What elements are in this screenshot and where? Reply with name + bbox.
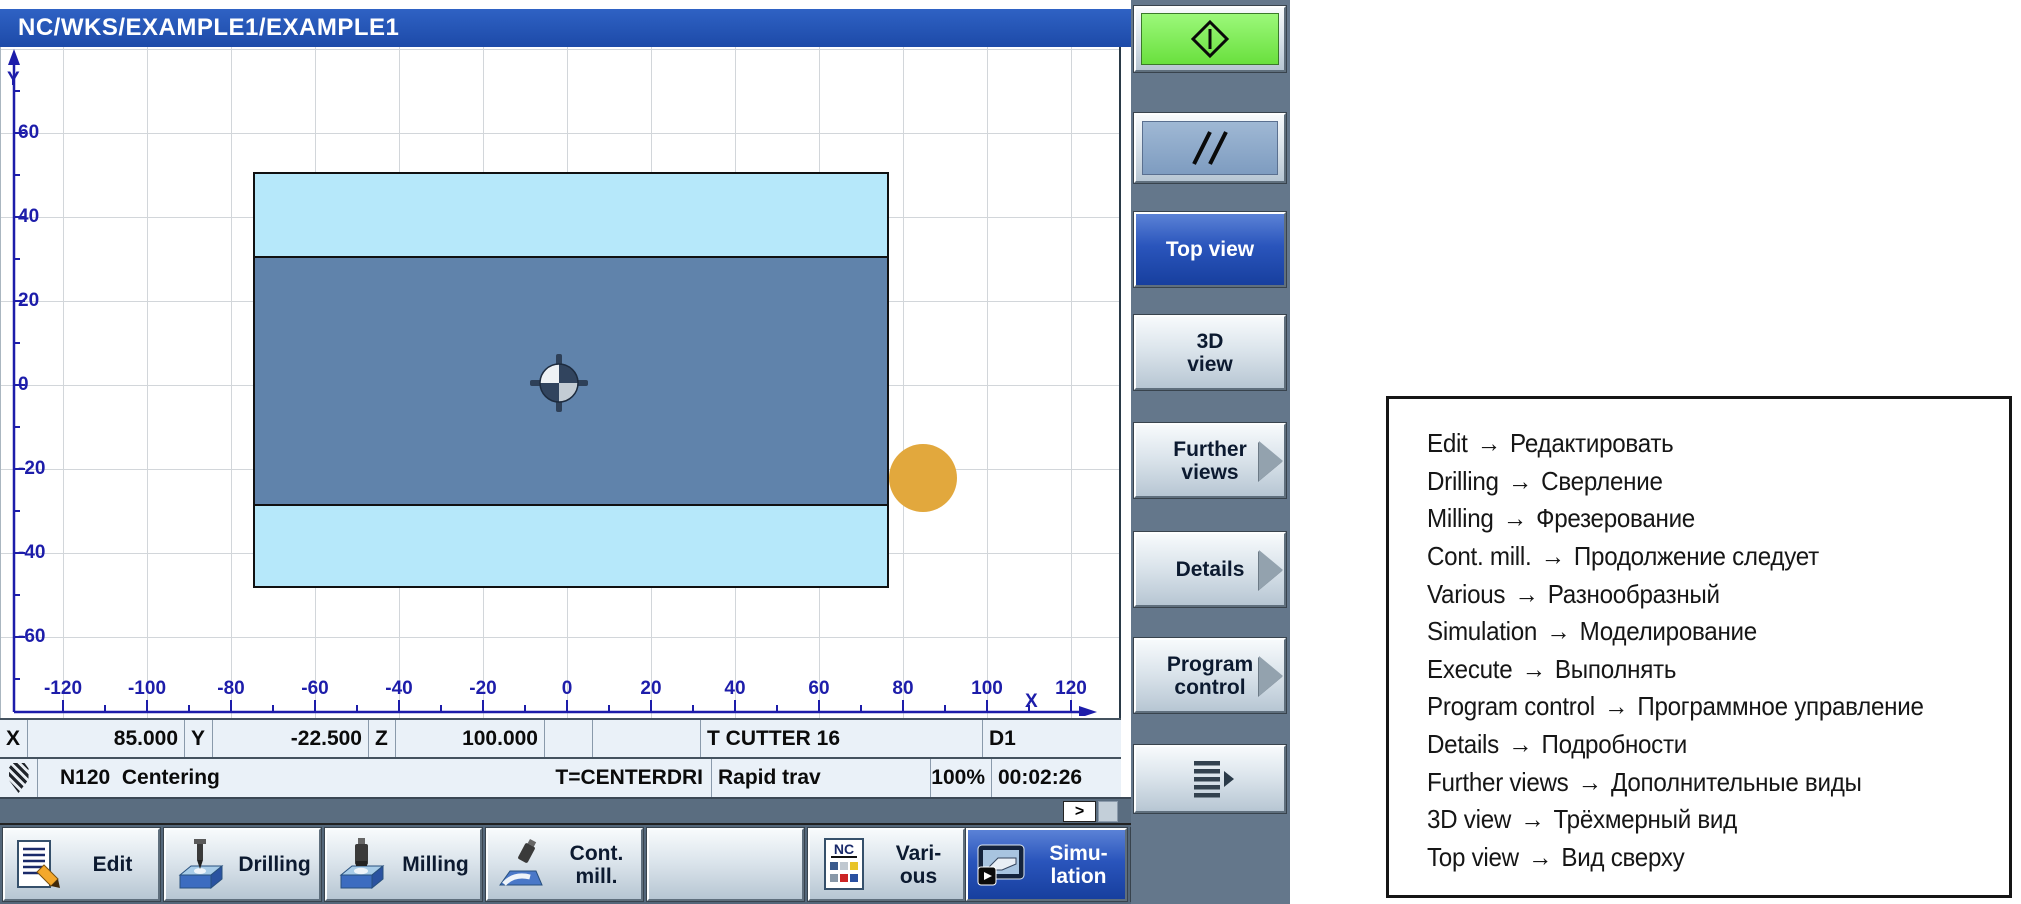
machining-time: 00:02:26	[992, 759, 1121, 797]
x-axis-value: 85.000	[28, 720, 185, 757]
arrow-glyph: →	[1604, 691, 1628, 722]
simulation-icon	[976, 837, 1028, 893]
z-axis-name: Z	[369, 720, 396, 757]
horizontal-softkey-bar: Edit Drilling	[0, 823, 1290, 904]
milling-icon	[335, 837, 387, 893]
softkey-cycle-start[interactable]	[1134, 6, 1286, 72]
softkey-further-views[interactable]: Further views	[1134, 423, 1286, 498]
softkey-drilling[interactable]: Drilling	[164, 828, 321, 901]
y-tick-label: -40	[18, 542, 68, 564]
legend-line: Various→Разнообразный	[1427, 575, 1968, 613]
legend-line: Edit→Редактировать	[1427, 425, 1968, 463]
program-path-titlebar: NC/WKS/EXAMPLE1/EXAMPLE1	[0, 9, 1131, 47]
softkey-label: Program control	[1167, 653, 1253, 699]
empty-cell	[593, 720, 701, 757]
y-tick-label: 60	[18, 122, 68, 144]
y-axis-letter: Y	[7, 69, 20, 91]
active-tool: T CUTTER 16	[701, 720, 983, 757]
arrow-glyph: →	[1522, 654, 1546, 685]
expand-spacer	[1098, 801, 1118, 822]
legend-line: Top view→Вид сверху	[1427, 839, 1968, 877]
arrow-glyph: →	[1520, 804, 1544, 835]
softkey-menu-extension[interactable]	[1134, 745, 1286, 813]
arrow-glyph: →	[1477, 428, 1501, 459]
submenu-arrow-icon	[1259, 550, 1283, 590]
current-block-cell: N120 Centering T=CENTERDRI	[38, 759, 712, 797]
x-tick-label: 20	[619, 678, 683, 700]
x-tick-label: 0	[535, 678, 599, 700]
softkey-reset[interactable]	[1134, 113, 1286, 183]
x-tick-label: 120	[1039, 678, 1103, 700]
softkey-label: Cont. mill.	[552, 842, 641, 888]
x-tick-label: -100	[115, 678, 179, 700]
operation-name: Centering	[122, 766, 220, 789]
simulation-top-view-canvas: -120 -100 -80 -60 -40 -20 0 20 40 60 80 …	[0, 47, 1121, 718]
x-tick-label: -20	[451, 678, 515, 700]
drilling-icon	[174, 837, 226, 893]
cnc-hmi-screen: NC/WKS/EXAMPLE1/EXAMPLE1	[0, 0, 1290, 904]
legend-line: Drilling→Сверление	[1427, 463, 1968, 501]
legend-line: Execute→Выполнять	[1427, 651, 1968, 689]
x-tick-label: -120	[31, 678, 95, 700]
contour-milling-icon	[496, 837, 548, 893]
legend-line: Further views→Дополнительные виды	[1427, 763, 1968, 801]
softkey-label: Top view	[1166, 238, 1254, 261]
x-axis-letter: X	[1025, 691, 1038, 713]
softkey-3d-view[interactable]: 3D view	[1134, 315, 1286, 390]
legend-line: Cont. mill.→Продолжение следует	[1427, 538, 1968, 576]
arrow-glyph: →	[1541, 541, 1565, 572]
expand-arrow-button[interactable]: >	[1063, 801, 1096, 822]
z-axis-value: 100.000	[396, 720, 545, 757]
softkey-label: Drilling	[230, 853, 319, 876]
workpiece-zero-marker-icon	[527, 351, 591, 415]
y-axis-arrow-icon	[8, 49, 20, 65]
feed-mode: Rapid trav	[712, 759, 931, 797]
arrow-glyph: →	[1503, 503, 1527, 534]
program-path: NC/WKS/EXAMPLE1/EXAMPLE1	[18, 14, 399, 41]
arrow-glyph: →	[1508, 729, 1532, 760]
softkey-edit[interactable]: Edit	[3, 828, 160, 901]
x-tick-label: 100	[955, 678, 1019, 700]
tool-offset: D1	[983, 720, 1121, 757]
softkey-label: Vari- ous	[874, 842, 963, 888]
y-tick-label: -60	[18, 626, 68, 648]
program-block-row: N120 Centering T=CENTERDRI Rapid trav 10…	[0, 757, 1121, 797]
edit-icon	[13, 838, 63, 892]
y-tick-label: 0	[18, 374, 68, 396]
softkey-label: Milling	[391, 853, 480, 876]
arrow-glyph: →	[1528, 842, 1552, 873]
softkey-label: Further views	[1173, 438, 1247, 484]
reset-double-slash-icon	[1180, 126, 1240, 170]
y-tick-label: -20	[18, 458, 68, 480]
screenshot-root: NC/WKS/EXAMPLE1/EXAMPLE1	[0, 0, 2021, 904]
axis-position-row: X 85.000 Y -22.500 Z 100.000 T CUTTER 16…	[0, 718, 1121, 757]
x-tick-label: -80	[199, 678, 263, 700]
block-number: N120	[60, 766, 110, 789]
x-axis-name: X	[0, 720, 28, 757]
arrow-glyph: →	[1508, 466, 1532, 497]
empty-cell	[545, 720, 593, 757]
softkey-top-view[interactable]: Top view	[1134, 212, 1286, 287]
svg-text:NC: NC	[834, 841, 854, 857]
softkey-milling[interactable]: Milling	[325, 828, 482, 901]
y-tick-label: 40	[18, 206, 68, 228]
softkey-label: 3D view	[1187, 330, 1233, 376]
vertical-softkey-bar: Top view 3D view Further views Details P…	[1131, 0, 1290, 904]
block-tool: T=CENTERDRI	[555, 766, 703, 790]
x-axis-arrow-icon	[1079, 706, 1097, 716]
legend-line: 3D view→Трёхмерный вид	[1427, 801, 1968, 839]
various-icon: NC	[818, 837, 870, 893]
cycle-start-icon	[1186, 15, 1234, 63]
softkey-various[interactable]: NC Vari- ous	[808, 828, 965, 901]
softkey-program-control[interactable]: Program control	[1134, 638, 1286, 713]
translation-legend-box: Edit→Редактировать Drilling→Сверление Mi…	[1386, 396, 2012, 898]
y-axis-value: -22.500	[213, 720, 369, 757]
legend-line: Program control→Программное управление	[1427, 688, 1968, 726]
y-tick-label: 20	[18, 290, 68, 312]
x-tick-label: 80	[871, 678, 935, 700]
legend-line: Simulation→Моделирование	[1427, 613, 1968, 651]
softkey-label: Details	[1176, 558, 1245, 581]
legend-line: Details→Подробности	[1427, 726, 1968, 764]
submenu-arrow-icon	[1259, 441, 1283, 481]
menu-bars-icon	[1182, 757, 1238, 801]
legend-line: Milling→Фрезерование	[1427, 500, 1968, 538]
softkey-details[interactable]: Details	[1134, 532, 1286, 607]
softkey-simulation[interactable]: Simu- lation	[966, 828, 1127, 901]
x-tick-label: -40	[367, 678, 431, 700]
arrow-glyph: →	[1578, 767, 1602, 798]
y-axis-name: Y	[185, 720, 213, 757]
submenu-arrow-icon	[1259, 656, 1283, 696]
arrow-glyph: →	[1546, 616, 1570, 647]
drilling-step-icon	[0, 759, 38, 797]
x-tick-label: 60	[787, 678, 851, 700]
x-tick-label: -60	[283, 678, 347, 700]
tool-cutter-circle	[889, 444, 957, 512]
softkey-empty[interactable]	[647, 828, 804, 901]
arrow-glyph: →	[1515, 579, 1539, 610]
feed-override: 100%	[931, 759, 992, 797]
softkey-divider-strip: >	[0, 797, 1131, 825]
softkey-label: Simu- lation	[1032, 842, 1125, 888]
softkey-label: Edit	[67, 853, 158, 876]
softkey-cont-mill[interactable]: Cont. mill.	[486, 828, 643, 901]
x-tick-label: 40	[703, 678, 767, 700]
